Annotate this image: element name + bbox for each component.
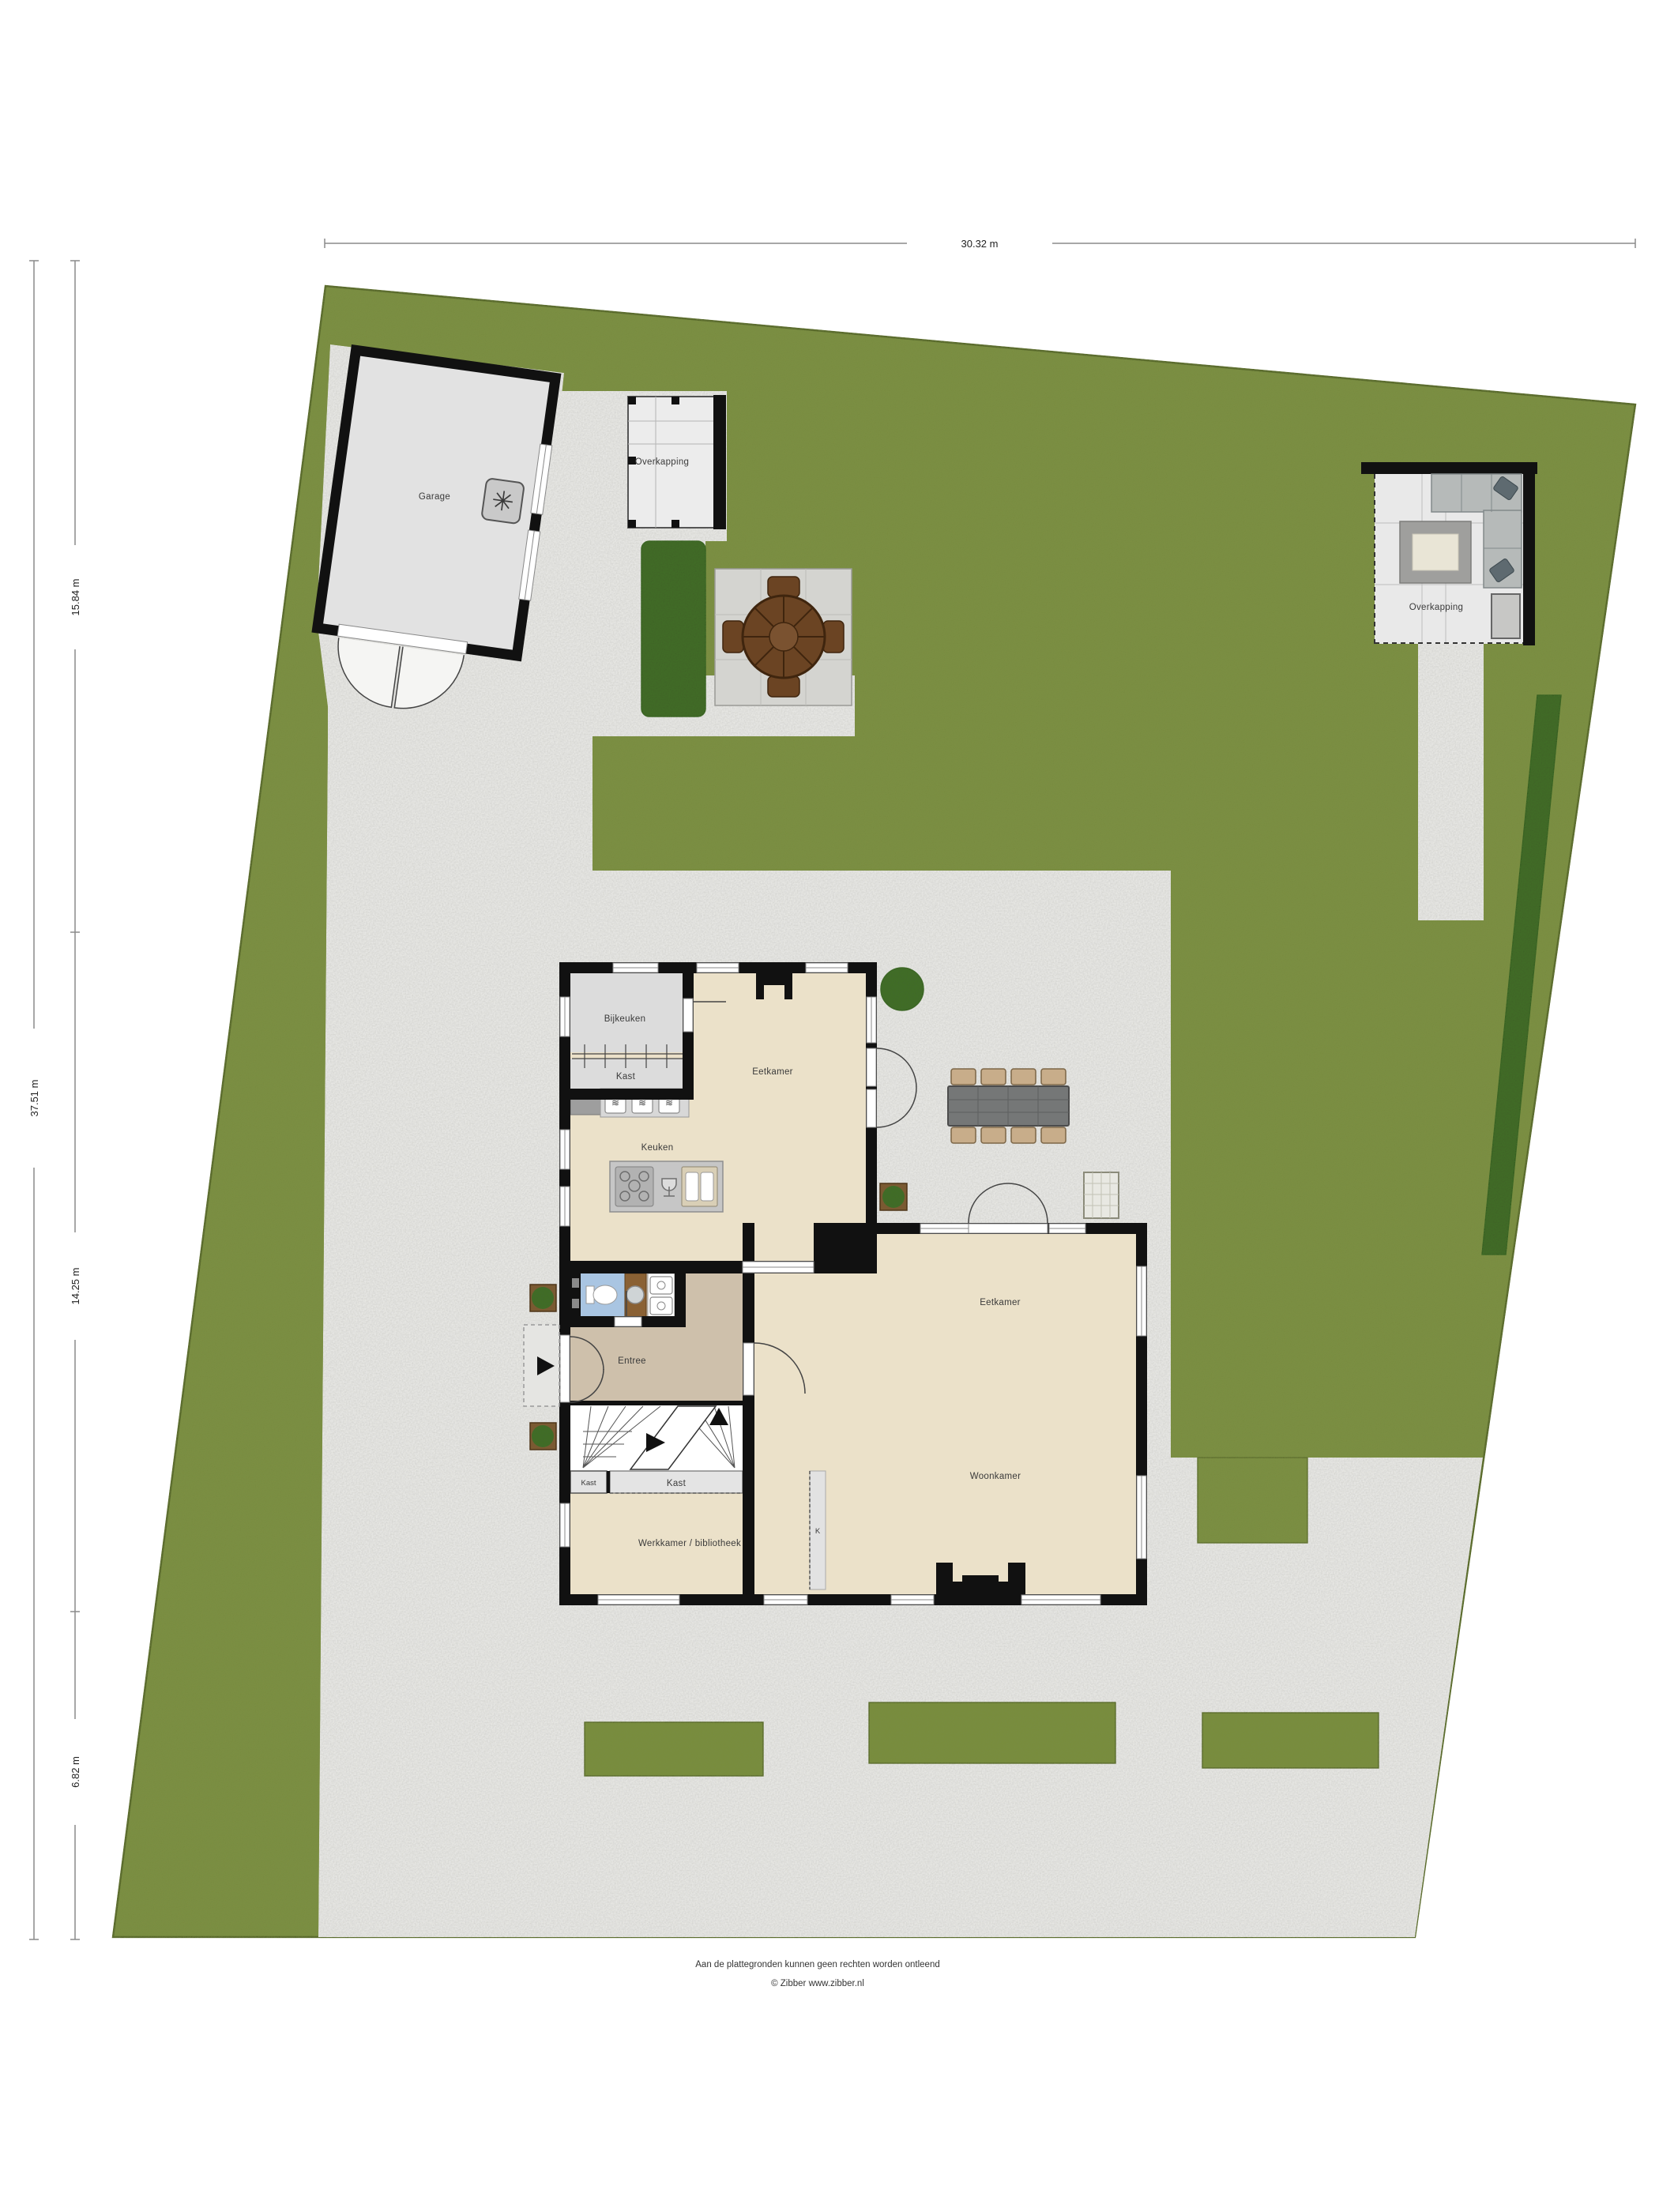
gravel-path-east: [1418, 642, 1484, 920]
eetkamer-label: Eetkamer: [980, 1298, 1021, 1307]
overkapping-east: [1361, 462, 1537, 645]
chair-east: [823, 621, 844, 653]
planter-west: [585, 1722, 763, 1776]
overkapping-west-label: Overkapping: [635, 457, 690, 467]
table-center: [769, 623, 798, 651]
entree-label: Entree: [618, 1356, 646, 1366]
dim-top: 30.32 m: [961, 238, 999, 250]
bijkeuken-label: Bijkeuken: [604, 1014, 646, 1024]
eetkamer-noord-label: Eetkamer: [752, 1067, 793, 1077]
hvac-unit: ✳: [481, 478, 525, 524]
entry-porch: [524, 1325, 559, 1406]
basin-2: [701, 1172, 713, 1201]
vanity-sink: [626, 1286, 644, 1303]
dim-left-total: 37.51 m: [28, 1080, 40, 1117]
closet-row: [570, 1471, 743, 1493]
niche-2: [572, 1299, 579, 1308]
planter-mid: [869, 1702, 1115, 1763]
keuken-label: Keuken: [641, 1143, 674, 1153]
footer-disclaimer: Aan de plattegronden kunnen geen rechten…: [695, 1960, 939, 1969]
niche-1: [572, 1278, 579, 1288]
kast-breed-label: Kast: [667, 1479, 687, 1488]
woonkamer-label: Woonkamer: [970, 1472, 1021, 1481]
basin-1: [686, 1172, 698, 1201]
lawn-island: [1198, 1458, 1307, 1543]
footer: Aan de plattegronden kunnen geen rechten…: [695, 1960, 939, 1988]
dim-left-3: 6.82 m: [70, 1756, 81, 1788]
planter-box-wing: [880, 1183, 907, 1210]
kast-klein-label: Kast: [581, 1479, 596, 1488]
werkkamer-label: Werkkamer / bibliotheek: [638, 1539, 741, 1548]
paver-terrace: [715, 569, 852, 705]
chair-west: [723, 621, 743, 653]
kast-divider: [607, 1471, 610, 1493]
overkapping-east-wall-right: [1523, 462, 1535, 645]
footer-copyright: © Zibber www.zibber.nl: [771, 1979, 864, 1988]
overkapping-east-wall-top: [1361, 462, 1537, 474]
chair-south: [768, 676, 799, 697]
toilet-room: [570, 1273, 675, 1318]
dim-left-1: 15.84 m: [70, 579, 81, 616]
kast-k-label: K: [815, 1527, 821, 1536]
floor-bijkeuken: [570, 973, 683, 1052]
bush-northeast: [881, 968, 924, 1010]
overkapping-east-label: Overkapping: [1409, 603, 1464, 612]
potted-plant-1: [530, 1285, 556, 1311]
kitchen-island: [610, 1161, 723, 1212]
site-plan: ✳ Garage Overkapping: [0, 0, 1659, 2212]
chimney-notch: [764, 985, 784, 999]
dim-left-2: 14.25 m: [70, 1268, 81, 1305]
woven-planter: [1084, 1172, 1119, 1218]
toilet-fixture: [586, 1285, 617, 1304]
lounge-side-table: [1492, 594, 1520, 638]
overkapping-west-wall: [713, 395, 726, 529]
garage-label: Garage: [419, 492, 450, 502]
kast-bijkeuken-label: Kast: [616, 1072, 636, 1082]
hedge-west: [641, 541, 705, 717]
potted-plant-2: [530, 1423, 556, 1450]
lounge-rug: [1400, 521, 1471, 583]
fan-icon: ✳: [490, 485, 516, 518]
utility-column: [648, 1273, 675, 1318]
chair-north: [768, 577, 799, 597]
planter-east: [1202, 1713, 1379, 1768]
